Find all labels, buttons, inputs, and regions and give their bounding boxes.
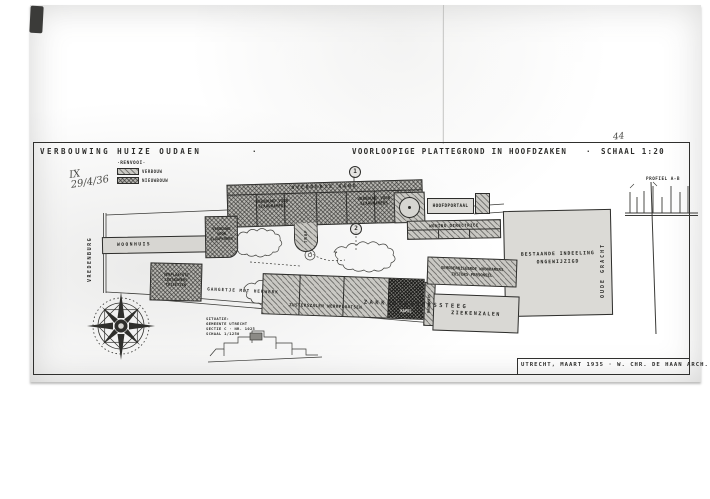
- compass-rose-icon: [83, 288, 159, 364]
- street-label-vredenburg: VREDENBURG: [87, 220, 93, 282]
- situatie-note: SITUATIE: GEMEENTE UTRECHT SECTIE C · NR…: [206, 316, 255, 336]
- sheet-title-scale: SCHAAL 1:20: [601, 147, 665, 156]
- room-label-trap: TRAP: [303, 225, 309, 247]
- legend-item: VERBOUW: [117, 168, 168, 175]
- room-trap: TRAP: [294, 223, 319, 253]
- room-hoofdportaal: HOOFDPORTAAL: [427, 198, 474, 214]
- legend: ·RENVOOI· VERBOUW NIEUWBOUW: [117, 161, 168, 184]
- room-label-gang: OVERDEKTE GANG: [228, 182, 422, 192]
- room-label-hoofdportaal: HOOFDPORTAAL: [428, 204, 473, 209]
- room-zusterszalen-band: ZUSTERSZALEN WERKPLAATSEN KAPEL: [261, 273, 424, 320]
- room-woonkamers-zusters: GEMODERNISEERDE WOONKAMERSZUSTERS PERSON…: [427, 256, 518, 287]
- signature-line: UTRECHT, MAART 1935 · W. CHR. DE HAAN AR…: [521, 362, 689, 368]
- hatch-swatch-nieuwbouw: [117, 177, 139, 184]
- plan-marker-2: 2: [350, 223, 362, 235]
- room-verbouwd-slaapkamer: VERBOUWDVOORSLAAPKAMER: [205, 216, 239, 259]
- profile-label: PROFIEL A-B: [627, 177, 699, 182]
- legend-item: NIEUWBOUW: [117, 177, 168, 184]
- scanned-plan-sheet: VERBOUWING HUIZE OUDAEN · VOORLOOPIGE PL…: [0, 0, 710, 499]
- title-block-line: [517, 358, 689, 359]
- legend-label: VERBOUW: [142, 169, 162, 174]
- room-label-woonkamers: GEMODERNISEERDE WOONKAMERSZUSTERS PERSON…: [428, 264, 516, 278]
- room-label-bestaand: BESTAANDE INDEELINGONGEWIJZIGD: [505, 250, 611, 268]
- room-label-woonhuis: WOONHUIS: [117, 242, 151, 248]
- room-woning-directrice: WONING DIRECTRICE: [407, 219, 501, 240]
- room-label-ziekenzalen: ZIEKENZALEN: [434, 311, 518, 319]
- room-label-verbouw: VERBOUWDVOORSLAAPKAMER: [206, 226, 237, 242]
- profile-sketch: [625, 182, 698, 216]
- skylight-circle: [399, 197, 421, 219]
- room-label-kapel: KAPEL: [388, 308, 423, 314]
- plan-marker-1: 1: [349, 166, 361, 178]
- hatch-swatch-verbouw: [117, 168, 139, 175]
- room-skylight: [394, 192, 426, 224]
- room-kapel: KAPEL: [387, 279, 424, 319]
- legend-label: NIEUWBOUW: [142, 178, 168, 183]
- legend-heading: ·RENVOOI·: [117, 161, 168, 166]
- title-separator-dot: ·: [252, 147, 257, 156]
- room-label-slaapkamers-west: VERBOUWD VOORSLAAPKAMERS: [230, 197, 314, 209]
- sheet-title-drawing: VOORLOOPIGE PLATTEGROND IN HOOFDZAKEN: [352, 147, 567, 156]
- room-entry-annex: [475, 193, 490, 214]
- room-verplaatste: VERPLAATSTELEESKAMERSTOILETTEN: [150, 262, 203, 301]
- room-ziekenzalen: ZIEKENZALEN: [432, 294, 519, 334]
- title-separator-dot: ·: [586, 147, 591, 156]
- title-block-divider: [517, 358, 518, 374]
- sheet-title-project: VERBOUWING HUIZE OUDAEN: [40, 147, 201, 156]
- street-label-oude-gracht: OUDE GRACHT: [600, 226, 606, 298]
- quay-line: [651, 182, 656, 334]
- handwritten-sheet-number: 44: [613, 131, 625, 142]
